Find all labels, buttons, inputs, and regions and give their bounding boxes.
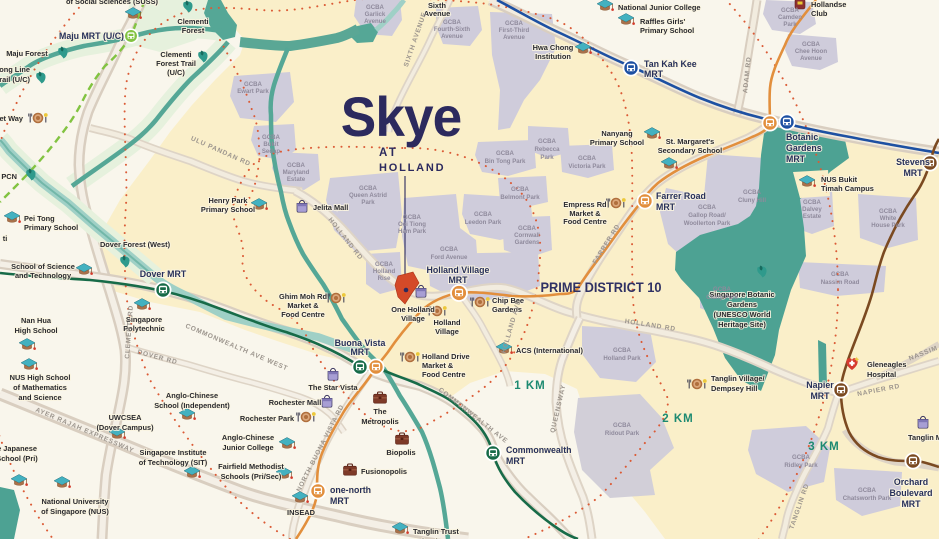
- svg-text:Holland Drive: Holland Drive: [422, 352, 470, 361]
- svg-text:GCBA: GCBA: [858, 487, 877, 494]
- svg-text:e Japanese: e Japanese: [0, 444, 37, 453]
- svg-text:Forest: Forest: [182, 26, 205, 35]
- svg-text:GCBA: GCBA: [713, 286, 732, 293]
- svg-text:Henry Park: Henry Park: [208, 196, 248, 205]
- svg-text:Dover Forest (West): Dover Forest (West): [100, 240, 171, 249]
- svg-text:Dempsey Hill: Dempsey Hill: [711, 384, 757, 393]
- svg-text:School (Pri): School (Pri): [0, 454, 38, 463]
- svg-text:Fairfield Methodist: Fairfield Methodist: [218, 462, 284, 471]
- svg-text:(UNESCO World: (UNESCO World: [714, 310, 771, 319]
- svg-text:GCBA: GCBA: [698, 204, 717, 211]
- svg-text:GCBA: GCBA: [440, 246, 459, 253]
- svg-text:MRT: MRT: [656, 202, 676, 212]
- svg-text:MRT: MRT: [330, 496, 350, 506]
- svg-text:(U/C): (U/C): [167, 68, 185, 77]
- svg-text:Maju Forest: Maju Forest: [6, 49, 48, 58]
- svg-text:Gardens: Gardens: [515, 239, 540, 246]
- svg-text:Clementi: Clementi: [160, 50, 191, 59]
- svg-text:Holland Park: Holland Park: [603, 355, 641, 362]
- svg-text:GCBA: GCBA: [366, 4, 385, 11]
- svg-text:Village: Village: [435, 327, 459, 336]
- svg-text:National Junior College: National Junior College: [618, 3, 701, 12]
- svg-text:GCBA: GCBA: [511, 186, 530, 193]
- svg-text:2 KM: 2 KM: [662, 413, 693, 425]
- svg-text:Avenue: Avenue: [441, 33, 463, 40]
- svg-text:NUS Bukit: NUS Bukit: [821, 175, 858, 184]
- svg-text:Empress Rd: Empress Rd: [563, 200, 607, 209]
- svg-text:Gleneagles: Gleneagles: [867, 360, 906, 369]
- svg-text:Estate: Estate: [287, 176, 306, 183]
- svg-text:Forest Trail: Forest Trail: [156, 59, 196, 68]
- svg-text:Anglo-Chinese: Anglo-Chinese: [166, 391, 218, 400]
- svg-text:Clementi: Clementi: [177, 17, 208, 26]
- svg-text:Primary School: Primary School: [640, 26, 694, 35]
- svg-text:n PCN: n PCN: [0, 172, 17, 181]
- svg-text:Commonwealth: Commonwealth: [506, 445, 572, 455]
- svg-text:GCBA: GCBA: [792, 454, 811, 461]
- svg-text:Ford Avenue: Ford Avenue: [431, 254, 468, 261]
- svg-text:Avenue: Avenue: [364, 18, 386, 25]
- svg-text:Rochester Mall: Rochester Mall: [269, 398, 322, 407]
- svg-text:Primary School: Primary School: [24, 223, 78, 232]
- svg-text:GCBA: GCBA: [831, 271, 850, 278]
- svg-text:Gardens: Gardens: [786, 143, 822, 153]
- svg-text:White: White: [880, 215, 897, 222]
- svg-text:MRT: MRT: [810, 391, 830, 401]
- svg-text:Garlick: Garlick: [365, 11, 386, 18]
- svg-text:GCBA: GCBA: [538, 138, 557, 145]
- svg-text:and Technology: and Technology: [15, 271, 72, 280]
- svg-text:Heritage Site): Heritage Site): [718, 320, 766, 329]
- svg-text:GCBA: GCBA: [359, 185, 378, 192]
- svg-text:Tanglin Trust: Tanglin Trust: [413, 527, 459, 536]
- svg-text:AT: AT: [379, 147, 398, 159]
- svg-text:GCBA: GCBA: [403, 214, 422, 221]
- svg-text:Market &: Market &: [287, 301, 319, 310]
- svg-text:Fusionopolis: Fusionopolis: [361, 467, 407, 476]
- svg-text:Singapore Institute: Singapore Institute: [140, 448, 207, 457]
- svg-text:GCBA: GCBA: [781, 7, 800, 14]
- svg-text:GCBA: GCBA: [262, 134, 281, 141]
- svg-text:Belmont Park: Belmont Park: [500, 194, 540, 201]
- svg-text:Skye: Skye: [341, 86, 461, 149]
- svg-text:Village: Village: [401, 314, 425, 323]
- svg-text:First-Third: First-Third: [499, 27, 530, 34]
- svg-text:MRT: MRT: [903, 168, 923, 178]
- svg-text:Hwa Chong: Hwa Chong: [533, 43, 574, 52]
- svg-text:Gallop Road/: Gallop Road/: [688, 212, 726, 219]
- svg-text:Cluny Hill: Cluny Hill: [738, 197, 766, 204]
- svg-text:Gardens: Gardens: [727, 300, 757, 309]
- svg-text:Market &: Market &: [422, 361, 454, 370]
- svg-text:of Social Sciences (SUSS): of Social Sciences (SUSS): [66, 0, 159, 6]
- svg-text:Victoria Park: Victoria Park: [568, 163, 606, 170]
- svg-text:rail (U/C): rail (U/C): [0, 75, 31, 84]
- svg-text:Ewart Park: Ewart Park: [237, 88, 269, 95]
- svg-text:GCBA: GCBA: [443, 19, 462, 26]
- svg-text:Junior College: Junior College: [222, 443, 273, 452]
- svg-text:Estate: Estate: [803, 213, 822, 220]
- svg-text:NUS High School: NUS High School: [10, 373, 71, 382]
- svg-text:Pei Tong: Pei Tong: [24, 214, 55, 223]
- svg-text:MRT: MRT: [901, 499, 921, 509]
- svg-text:INSEAD: INSEAD: [287, 508, 316, 517]
- svg-text:(Dover Campus): (Dover Campus): [96, 423, 154, 432]
- svg-text:Dalvey: Dalvey: [802, 206, 822, 213]
- svg-text:The: The: [373, 407, 386, 416]
- svg-text:ACS (International): ACS (International): [516, 346, 583, 355]
- svg-text:Fourth-Sixth: Fourth-Sixth: [434, 26, 470, 33]
- svg-text:Bukit: Bukit: [263, 141, 278, 148]
- svg-text:GCBA: GCBA: [375, 261, 394, 268]
- svg-text:GCBA: GCBA: [496, 150, 515, 157]
- svg-text:GCBA: GCBA: [803, 199, 822, 206]
- svg-text:Primary School: Primary School: [201, 205, 255, 214]
- svg-text:Chee Hoon: Chee Hoon: [795, 48, 827, 55]
- svg-text:Food Centre: Food Centre: [563, 217, 607, 226]
- svg-text:Sedap: Sedap: [262, 148, 281, 155]
- svg-text:Oei Tiong: Oei Tiong: [398, 221, 426, 228]
- svg-text:Boulevard: Boulevard: [889, 488, 932, 498]
- svg-text:Farrer Road: Farrer Road: [656, 191, 706, 201]
- svg-text:Woollerton Park: Woollerton Park: [684, 220, 731, 227]
- svg-text:rong Line: rong Line: [0, 65, 30, 74]
- svg-text:of Mathematics: of Mathematics: [13, 383, 67, 392]
- svg-text:Leedon Park: Leedon Park: [465, 219, 502, 226]
- svg-text:Raffles Girls': Raffles Girls': [640, 17, 686, 26]
- svg-text:Timah Campus: Timah Campus: [821, 184, 874, 193]
- svg-text:3 KM: 3 KM: [808, 441, 839, 453]
- svg-text:National University: National University: [42, 497, 110, 506]
- svg-text:Tanglin Mall: Tanglin Mall: [908, 433, 939, 442]
- svg-text:Hollandse: Hollandse: [811, 0, 846, 9]
- svg-text:Ghim Moh Rd: Ghim Moh Rd: [279, 292, 328, 301]
- svg-text:Ridley Park: Ridley Park: [784, 462, 818, 469]
- svg-text:School of Science: School of Science: [11, 262, 75, 271]
- svg-text:Nanyang: Nanyang: [601, 129, 633, 138]
- svg-text:One Holland: One Holland: [391, 305, 435, 314]
- svg-text:and Science: and Science: [18, 393, 61, 402]
- svg-text:Maryland: Maryland: [283, 169, 310, 176]
- svg-text:Dover MRT: Dover MRT: [140, 269, 187, 279]
- svg-text:School (Independent): School (Independent): [154, 401, 230, 410]
- svg-text:Institution: Institution: [535, 52, 571, 61]
- svg-text:GCBA: GCBA: [879, 208, 898, 215]
- svg-text:GCBA: GCBA: [613, 422, 632, 429]
- svg-text:Primary School: Primary School: [590, 138, 644, 147]
- svg-text:Tan Kah Kee: Tan Kah Kee: [644, 59, 697, 69]
- svg-text:Chatsworth Park: Chatsworth Park: [843, 495, 892, 502]
- svg-text:of Technology (SIT): of Technology (SIT): [139, 458, 208, 467]
- svg-text:set Way: set Way: [0, 114, 24, 123]
- svg-text:Biopolis: Biopolis: [386, 448, 415, 457]
- svg-text:Botanic: Botanic: [786, 132, 818, 142]
- svg-text:MRT: MRT: [350, 347, 370, 357]
- svg-text:Stevens: Stevens: [896, 157, 930, 167]
- svg-text:GCBA: GCBA: [287, 162, 306, 169]
- svg-text:Rise: Rise: [378, 275, 391, 282]
- svg-text:Ham Park: Ham Park: [398, 228, 427, 235]
- svg-text:GCBA: GCBA: [505, 20, 524, 27]
- svg-text:UWCSEA: UWCSEA: [109, 413, 143, 422]
- svg-text:Anglo-Chinese: Anglo-Chinese: [222, 433, 274, 442]
- svg-text:Queen Astrid: Queen Astrid: [349, 192, 387, 199]
- svg-text:Rebecca: Rebecca: [534, 146, 560, 153]
- svg-text:Cornwall: Cornwall: [514, 232, 540, 239]
- svg-text:Orchard: Orchard: [894, 477, 928, 487]
- svg-text:Cluny Park: Cluny Park: [706, 294, 738, 301]
- svg-text:Bin Tong Park: Bin Tong Park: [485, 158, 526, 165]
- svg-text:MRT: MRT: [448, 275, 468, 285]
- svg-text:Hospital: Hospital: [867, 370, 896, 379]
- svg-text:Tanglin Village/: Tanglin Village/: [711, 374, 765, 383]
- svg-text:GCBA: GCBA: [474, 211, 493, 218]
- svg-text:PRIME DISTRICT 10: PRIME DISTRICT 10: [541, 279, 662, 295]
- svg-text:GCBA: GCBA: [518, 225, 537, 232]
- svg-text:Food Centre: Food Centre: [422, 370, 466, 379]
- svg-text:one-north: one-north: [330, 485, 371, 495]
- svg-text:GCBA: GCBA: [578, 155, 597, 162]
- svg-text:1 KM: 1 KM: [514, 380, 545, 392]
- svg-text:The Star Vista: The Star Vista: [308, 383, 358, 392]
- svg-text:House Park: House Park: [871, 222, 905, 229]
- svg-text:Holland: Holland: [373, 268, 396, 275]
- svg-text:GCBA: GCBA: [743, 189, 762, 196]
- svg-text:Nassim Road: Nassim Road: [821, 279, 860, 286]
- svg-text:High School: High School: [14, 326, 57, 335]
- svg-text:GCBA: GCBA: [244, 81, 263, 88]
- svg-text:Holland Village: Holland Village: [427, 265, 490, 275]
- svg-text:Rochester Park: Rochester Park: [240, 414, 295, 423]
- svg-text:Avenue: Avenue: [800, 55, 822, 62]
- svg-text:Nan Hua: Nan Hua: [21, 316, 52, 325]
- svg-text:Food Centre: Food Centre: [281, 310, 325, 319]
- svg-text:Metropolis: Metropolis: [361, 417, 398, 426]
- svg-text:MRT: MRT: [786, 154, 806, 164]
- svg-text:Secondary School: Secondary School: [658, 146, 722, 155]
- svg-text:Avenue: Avenue: [503, 34, 525, 41]
- svg-text:St. Margaret's: St. Margaret's: [666, 137, 715, 146]
- svg-text:Club: Club: [811, 9, 828, 18]
- svg-text:Ridout Park: Ridout Park: [605, 430, 640, 437]
- svg-text:Holland: Holland: [433, 318, 461, 327]
- svg-text:MRT: MRT: [506, 456, 526, 466]
- svg-text:Jelita Mall: Jelita Mall: [313, 203, 348, 212]
- svg-text:Napier: Napier: [806, 380, 834, 390]
- svg-text:Maju MRT (U/C): Maju MRT (U/C): [59, 31, 124, 41]
- svg-text:GCBA: GCBA: [802, 41, 821, 48]
- svg-text:of Singapore (NUS): of Singapore (NUS): [41, 507, 109, 516]
- svg-text:ti: ti: [3, 234, 8, 243]
- svg-text:Park: Park: [540, 154, 554, 161]
- svg-text:GCBA: GCBA: [613, 347, 632, 354]
- svg-text:Park: Park: [361, 199, 375, 206]
- svg-text:Park: Park: [783, 21, 797, 28]
- svg-text:Schools (Pri/Sec): Schools (Pri/Sec): [221, 472, 282, 481]
- svg-text:MRT: MRT: [644, 69, 664, 79]
- svg-text:HOLLAND: HOLLAND: [379, 162, 445, 174]
- svg-text:Camden: Camden: [778, 14, 802, 21]
